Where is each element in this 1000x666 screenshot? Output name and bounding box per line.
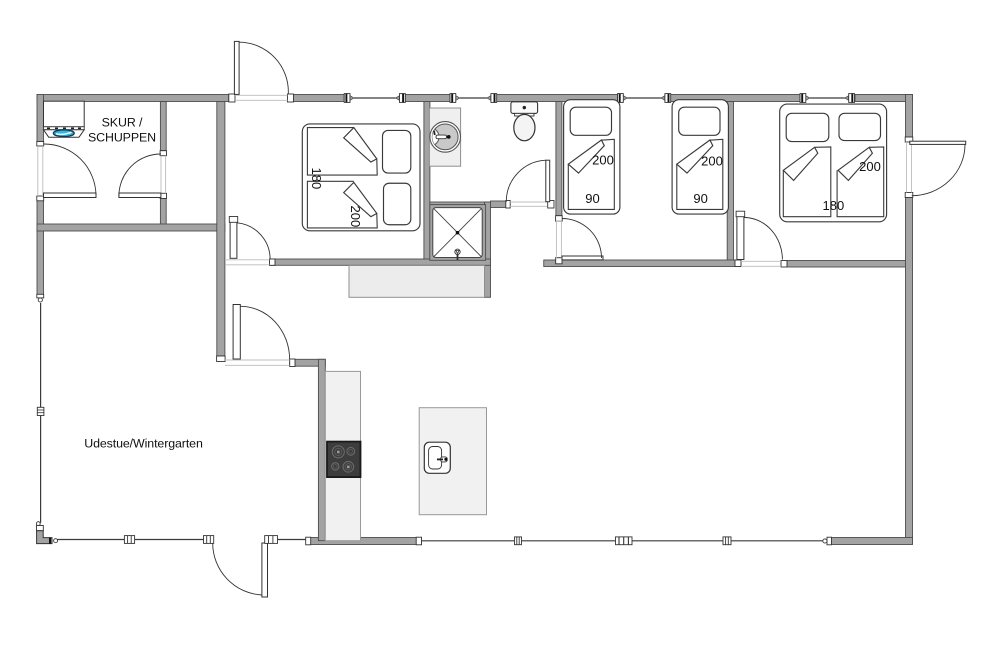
svg-text:180: 180 (309, 168, 324, 190)
svg-text:SCHUPPEN: SCHUPPEN (88, 130, 156, 144)
svg-text:SKUR /: SKUR / (102, 115, 143, 129)
svg-text:Udestue/Wintergarten: Udestue/Wintergarten (84, 437, 203, 451)
svg-text:200: 200 (859, 159, 881, 174)
svg-text:90: 90 (585, 191, 599, 206)
svg-text:90: 90 (693, 191, 707, 206)
svg-text:180: 180 (823, 198, 845, 213)
svg-text:200: 200 (348, 206, 363, 228)
svg-text:200: 200 (592, 153, 614, 168)
svg-text:200: 200 (701, 154, 723, 169)
